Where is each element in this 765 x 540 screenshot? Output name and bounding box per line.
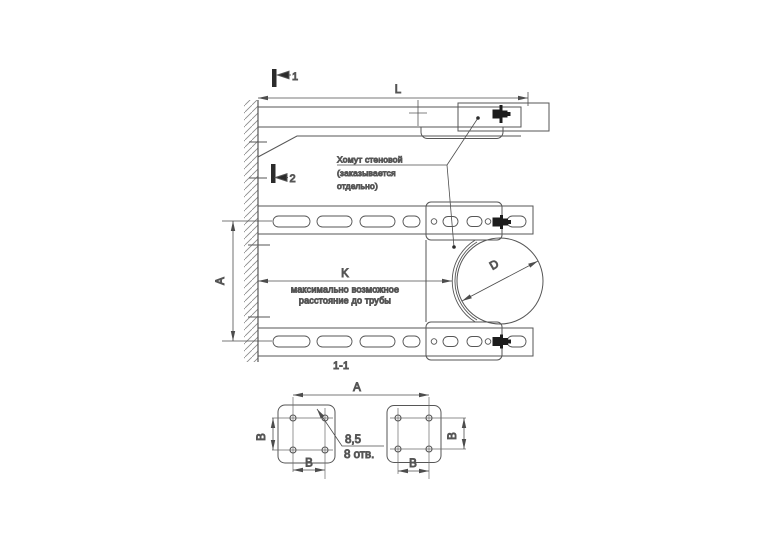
dim-B-left-bottom-label: B xyxy=(305,458,313,470)
slot xyxy=(443,217,458,227)
section-marker-1: 1 xyxy=(272,69,298,87)
slot xyxy=(273,216,310,227)
slot xyxy=(273,336,310,347)
upper-rail xyxy=(258,206,533,234)
holes-count-label: 8 отв. xyxy=(344,449,374,461)
slot xyxy=(360,216,395,227)
clamp-band-arc-outer xyxy=(452,240,475,322)
section-view-title: 1-1 xyxy=(333,360,349,372)
dim-L-label: L xyxy=(395,84,402,96)
section-arrowhead xyxy=(276,174,288,182)
slot xyxy=(403,336,420,347)
clamp-bolt-lower xyxy=(493,335,512,349)
K-note-line-2: расстояние до трубы xyxy=(299,296,391,306)
callout-line-2: (заказывается xyxy=(337,168,396,178)
section-cut-bar xyxy=(271,164,276,183)
wall xyxy=(244,100,270,362)
wall-hatching xyxy=(244,100,258,362)
lower-rail xyxy=(258,328,533,356)
bracket-arm xyxy=(258,107,521,127)
section-1-label: 1 xyxy=(292,71,298,83)
clamp-bolt-side xyxy=(493,105,511,123)
plate-centerlines xyxy=(272,397,466,479)
slot xyxy=(317,216,352,227)
wall-plate-right xyxy=(387,406,441,463)
holes-diameter-label: 8,5 xyxy=(345,434,361,446)
upper-rail-slots xyxy=(273,216,526,227)
section-marker-2: 2 xyxy=(271,164,296,185)
slot xyxy=(443,337,458,347)
bracket-drawing: L 1 2 Хомут стеновой (заказывается отдел… xyxy=(0,0,765,540)
dim-B-right-label: B xyxy=(447,432,459,440)
K-note-line-1: максимально возможное xyxy=(291,285,399,295)
lower-rail-slots xyxy=(273,336,526,347)
clamp-bolt-upper xyxy=(493,215,512,229)
dimension-L xyxy=(258,92,528,106)
dim-K-label: K xyxy=(341,268,349,280)
dim-B-left-label: B xyxy=(256,433,268,441)
slot xyxy=(360,336,395,347)
slot xyxy=(317,336,352,347)
dim-A-bottom-label: A xyxy=(353,382,361,394)
technical-drawing-page: L 1 2 Хомут стеновой (заказывается отдел… xyxy=(0,0,765,540)
slot xyxy=(467,337,482,347)
dim-B-right-bottom-label: B xyxy=(409,458,417,470)
hole xyxy=(431,219,437,225)
dim-D-label: D xyxy=(488,258,501,273)
clamp-band-underhang xyxy=(421,127,503,139)
plate-holes xyxy=(290,415,432,453)
dim-A-side-label: A xyxy=(215,277,227,285)
leader-dot xyxy=(452,245,456,249)
slot xyxy=(467,217,482,227)
section-2-label: 2 xyxy=(290,173,296,185)
callout-line-3: отдельно) xyxy=(337,181,378,191)
wall-plate-left xyxy=(278,405,335,463)
callout-leader-up xyxy=(447,118,478,165)
bottom-view: A B B B B 8,5 8 отв. xyxy=(256,382,466,479)
callout-line-1: Хомут стеновой xyxy=(337,155,403,165)
clamp-band-arc-inner xyxy=(455,242,477,320)
holes-callout: 8,5 8 отв. xyxy=(317,409,384,461)
section-cut-bar xyxy=(272,69,277,87)
hole xyxy=(485,339,491,345)
section-arrowhead xyxy=(278,71,290,79)
hole xyxy=(431,339,437,345)
section-view: K максимально возможное расстояние до тр… xyxy=(215,202,543,372)
hole xyxy=(485,219,491,225)
leader-dot xyxy=(476,116,480,120)
center-cross-mark xyxy=(409,100,427,126)
slot xyxy=(403,216,420,227)
